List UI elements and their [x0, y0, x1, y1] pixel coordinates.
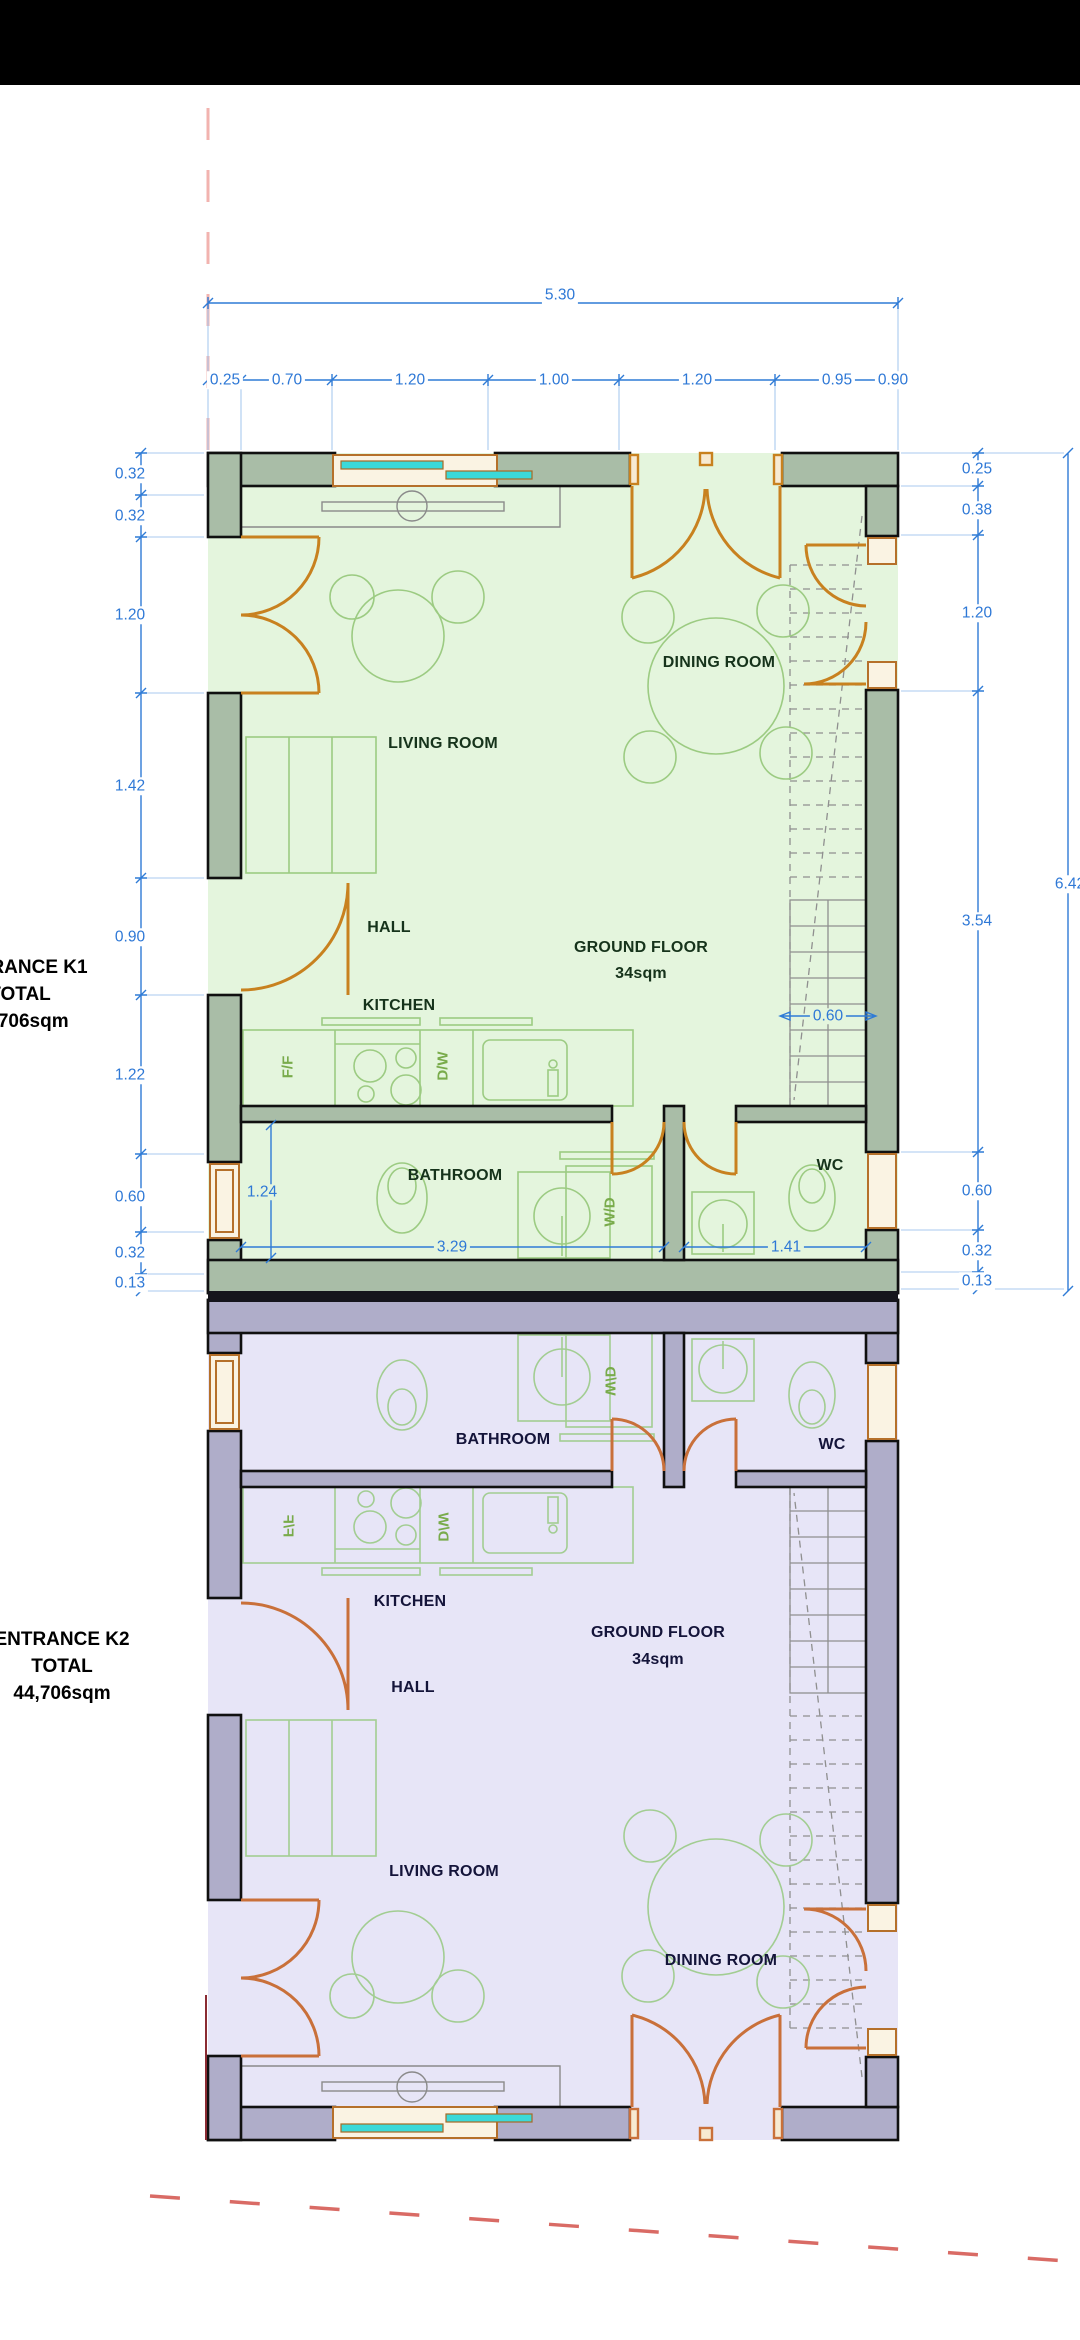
party-wall-line	[208, 1291, 898, 1302]
unit-k1	[208, 453, 898, 1293]
floor-plan-drawing	[0, 0, 1080, 2340]
unit-k2	[208, 1300, 898, 2140]
floor-plan-canvas: ENTRANCE K1 TOTAL 44,706sqm ENTRANCE K2 …	[0, 0, 1080, 2340]
construction-line-bottom	[150, 2196, 1080, 2262]
